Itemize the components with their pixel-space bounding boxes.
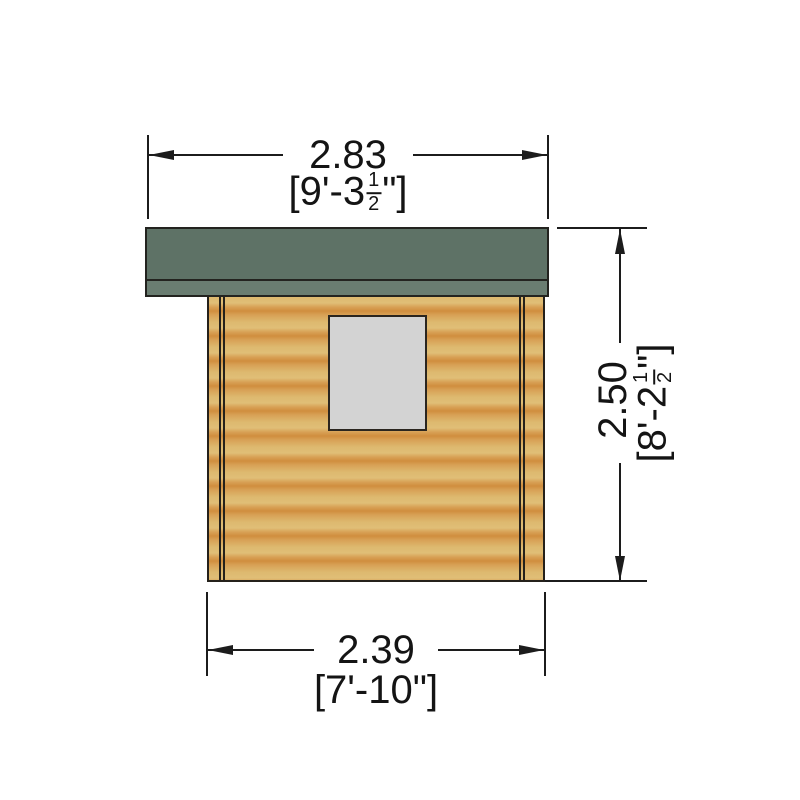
imperial-prefix: [8'-2: [631, 386, 675, 463]
arrowhead-right-icon: [519, 645, 544, 655]
fraction: 12: [366, 170, 381, 215]
extension-line: [547, 135, 549, 219]
extension-line: [557, 227, 647, 229]
cabin-window: [328, 315, 427, 431]
roof-fascia: [147, 279, 547, 295]
dimension-right-imperial: [8'-212"]: [632, 344, 677, 463]
extension-line: [206, 592, 208, 676]
imperial-prefix: [7'-10: [314, 668, 413, 712]
imperial-suffix: "]: [631, 344, 675, 369]
arrowhead-left-icon: [208, 645, 233, 655]
imperial-suffix: "]: [382, 170, 407, 214]
arrowhead-left-icon: [149, 150, 174, 160]
dimension-right-metric: 2.50: [593, 361, 633, 439]
arrowhead-right-icon: [522, 150, 547, 160]
arrowhead-up-icon: [615, 229, 625, 254]
imperial-prefix: [9'-3: [289, 170, 366, 214]
extension-line: [544, 592, 546, 676]
corner-post-right-line: [519, 297, 521, 580]
extension-line: [545, 580, 647, 582]
arrowhead-down-icon: [615, 556, 625, 581]
cabin-roof: [145, 227, 549, 297]
corner-post-left-line: [223, 297, 225, 580]
dimension-bottom-metric: 2.39: [337, 630, 415, 670]
fraction: 12: [631, 370, 676, 385]
corner-post-left-line: [219, 297, 221, 580]
elevation-drawing: 2.83 [9'-312"] 2.50 [8'-212"] 2.39: [0, 0, 800, 800]
extension-line: [147, 135, 149, 219]
dimension-top-imperial: [9'-312"]: [289, 171, 408, 216]
corner-post-right-line: [523, 297, 525, 580]
dimension-bottom-imperial: [7'-10"]: [314, 670, 438, 710]
imperial-suffix: "]: [413, 668, 438, 712]
